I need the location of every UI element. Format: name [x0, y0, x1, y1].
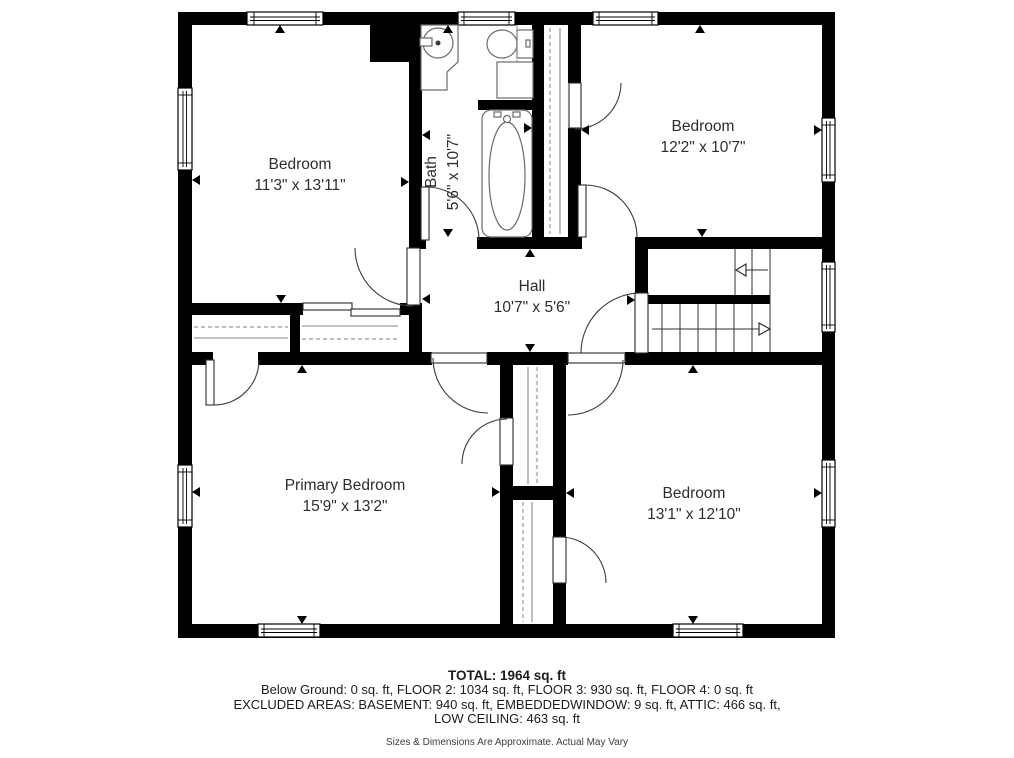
primary-bedroom-name: Primary Bedroom — [285, 477, 406, 494]
floor-plan-page: Bedroom 11'3" x 13'11" Bath 5'6" x 10'7"… — [0, 0, 1014, 758]
door-bedroom-top-left — [355, 248, 420, 306]
door-primary-closet — [462, 418, 513, 465]
excluded-areas-text: EXCLUDED AREAS: BASEMENT: 940 sq. ft, EM… — [0, 698, 1014, 713]
floor-areas-text: Below Ground: 0 sq. ft, FLOOR 2: 1034 sq… — [0, 683, 1014, 698]
hall-dims: 10'7" x 5'6" — [494, 299, 570, 316]
bedroom-top-left-dims: 11'3" x 13'11" — [254, 177, 345, 194]
bedroom-bottom-right-name: Bedroom — [663, 485, 726, 502]
bedroom-top-right-name: Bedroom — [672, 118, 735, 135]
bath-dims: 5'6" x 10'7" — [445, 134, 462, 210]
window — [593, 12, 658, 25]
window — [178, 88, 192, 170]
hall-name: Hall — [519, 278, 546, 295]
toilet-icon — [487, 25, 533, 62]
sink-icon — [420, 25, 458, 90]
window — [458, 12, 515, 25]
bath-name: Bath — [423, 156, 440, 188]
area-summary: TOTAL: 1964 sq. ft Below Ground: 0 sq. f… — [0, 668, 1014, 748]
door-stairs — [581, 293, 648, 353]
cabinet-icon — [497, 62, 533, 98]
door-closet-bottom-right — [553, 537, 606, 583]
door-bedroom-top-right — [578, 185, 637, 237]
bath-fixtures — [420, 25, 533, 237]
disclaimer-text: Sizes & Dimensions Are Approximate. Actu… — [0, 737, 1014, 748]
primary-bedroom-dims: 15'9" x 13'2" — [302, 498, 387, 515]
excluded-areas-text2: LOW CEILING: 463 sq. ft — [0, 712, 1014, 727]
floor-plan-drawing: Bedroom 11'3" x 13'11" Bath 5'6" x 10'7"… — [0, 0, 1014, 758]
window — [822, 460, 835, 527]
door-bedroom-bottom-right — [568, 353, 625, 415]
window — [673, 624, 743, 637]
window — [822, 118, 835, 182]
door-primary-bedroom — [431, 353, 488, 413]
window — [178, 465, 192, 527]
door-closet-top-right — [569, 83, 621, 129]
bedroom-top-left-name: Bedroom — [269, 156, 332, 173]
sliding-closet-doors — [303, 303, 400, 316]
window — [822, 262, 835, 332]
bedroom-top-right-dims: 12'2" x 10'7" — [660, 139, 745, 156]
bedroom-bottom-right-dims: 13'1" x 12'10" — [647, 506, 741, 523]
window — [258, 624, 320, 637]
door-closet-a — [206, 360, 259, 405]
window — [247, 12, 323, 25]
total-area-text: TOTAL: 1964 sq. ft — [0, 668, 1014, 683]
